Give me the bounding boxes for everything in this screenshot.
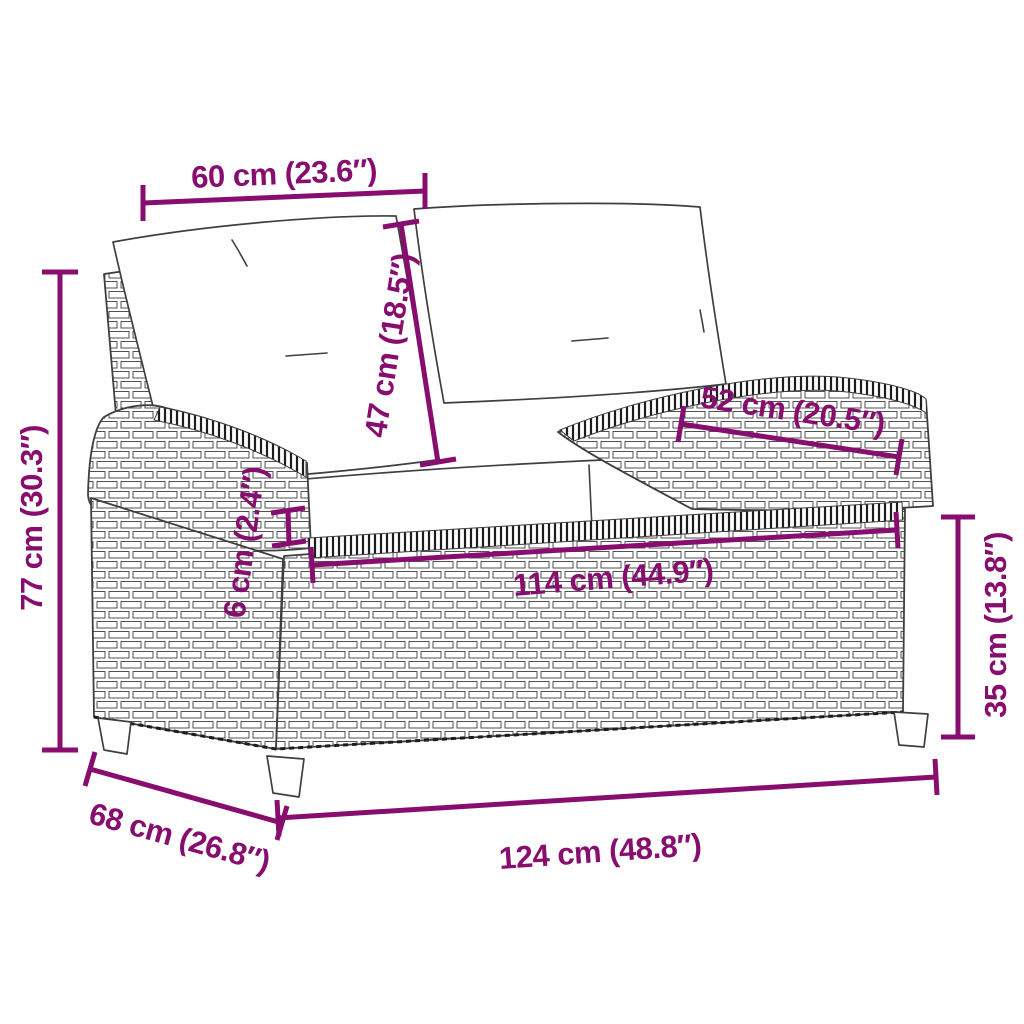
dimension-diagram: 60 cm (23.6″) 47 cm (18.5″) 52 cm (20.5″…	[0, 0, 1024, 1024]
back-cushion-right	[414, 203, 726, 403]
dimension-label-35cm: 35 cm (13.8″)	[978, 532, 1013, 718]
leg-front-right	[894, 712, 928, 747]
leg-side-left	[98, 718, 131, 754]
leg-front-left	[267, 756, 304, 797]
dimension-line	[143, 191, 425, 203]
dimension-backrest-cushion-width: 60 cm (23.6″)	[143, 152, 425, 221]
dimension-total-height: 77 cm (30.3″)	[14, 272, 78, 750]
sofa-diagram-svg: 60 cm (23.6″) 47 cm (18.5″) 52 cm (20.5″…	[0, 0, 1024, 1024]
dimension-depth: 68 cm (26.8″)	[85, 752, 287, 879]
dimension-label-124cm: 124 cm (48.8″)	[498, 827, 703, 876]
dimension-line	[278, 777, 936, 818]
dimension-base-height: 35 cm (13.8″)	[941, 517, 1013, 737]
dimension-line	[288, 511, 289, 543]
dimension-total-width: 124 cm (48.8″)	[277, 759, 937, 876]
dimension-label-68cm: 68 cm (26.8″)	[85, 796, 273, 879]
dimension-label-60cm: 60 cm (23.6″)	[190, 152, 377, 195]
dimension-label-77cm: 77 cm (30.3″)	[14, 425, 49, 611]
